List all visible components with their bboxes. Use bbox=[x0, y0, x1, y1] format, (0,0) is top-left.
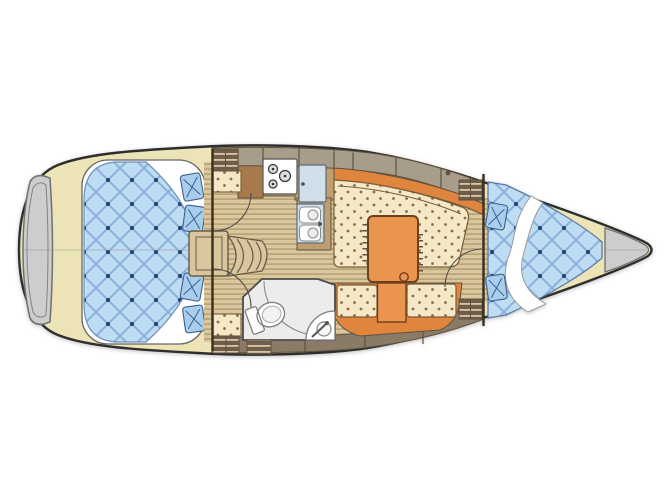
lower-settee-cushion-right bbox=[407, 284, 456, 317]
boat-floorplan bbox=[0, 0, 667, 500]
refrigerator-handle bbox=[301, 182, 305, 186]
pillow bbox=[180, 172, 204, 201]
sink-faucet bbox=[318, 222, 322, 226]
settee-latch-knob bbox=[446, 171, 451, 176]
head-compartment bbox=[243, 279, 335, 340]
saloon-table bbox=[365, 216, 421, 282]
seat-top bbox=[213, 171, 241, 192]
double-sink bbox=[297, 204, 324, 243]
galley-cabinet bbox=[238, 164, 263, 198]
table-top bbox=[368, 216, 418, 282]
hull-group bbox=[19, 145, 652, 354]
table-knob bbox=[400, 273, 408, 281]
fore-cabin bbox=[485, 182, 648, 318]
boat-floorplan-canvas bbox=[0, 0, 667, 500]
vent-locker-below-head bbox=[247, 340, 271, 354]
pillow bbox=[182, 205, 205, 234]
seat-bottom bbox=[213, 314, 241, 336]
basin-bowl bbox=[317, 322, 331, 336]
pillow bbox=[485, 202, 508, 230]
stove bbox=[263, 159, 297, 194]
lower-settee-cushion-left bbox=[337, 285, 377, 317]
lower-settee-mid-section bbox=[378, 283, 407, 322]
refrigerator bbox=[299, 165, 326, 202]
pillow bbox=[182, 305, 205, 334]
pillow bbox=[180, 272, 204, 301]
pillow bbox=[485, 274, 507, 301]
